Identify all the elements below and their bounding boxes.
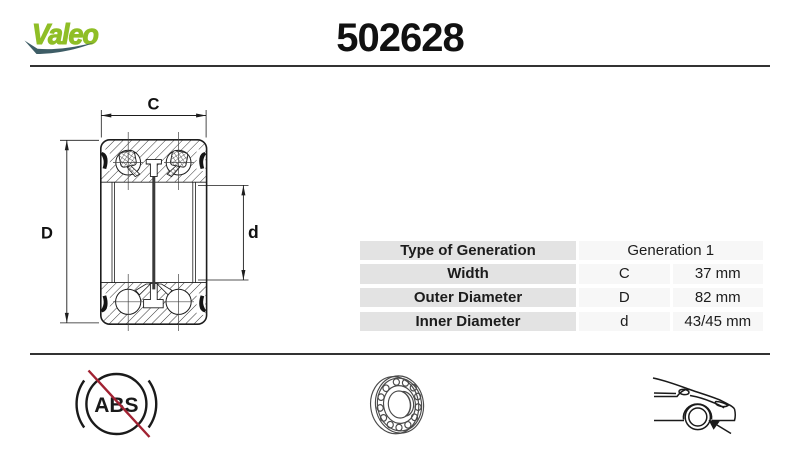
svg-text:d: d	[248, 222, 259, 242]
svg-text:ABS: ABS	[94, 394, 138, 417]
svg-text:C: C	[148, 96, 160, 114]
svg-text:D: D	[41, 225, 53, 243]
